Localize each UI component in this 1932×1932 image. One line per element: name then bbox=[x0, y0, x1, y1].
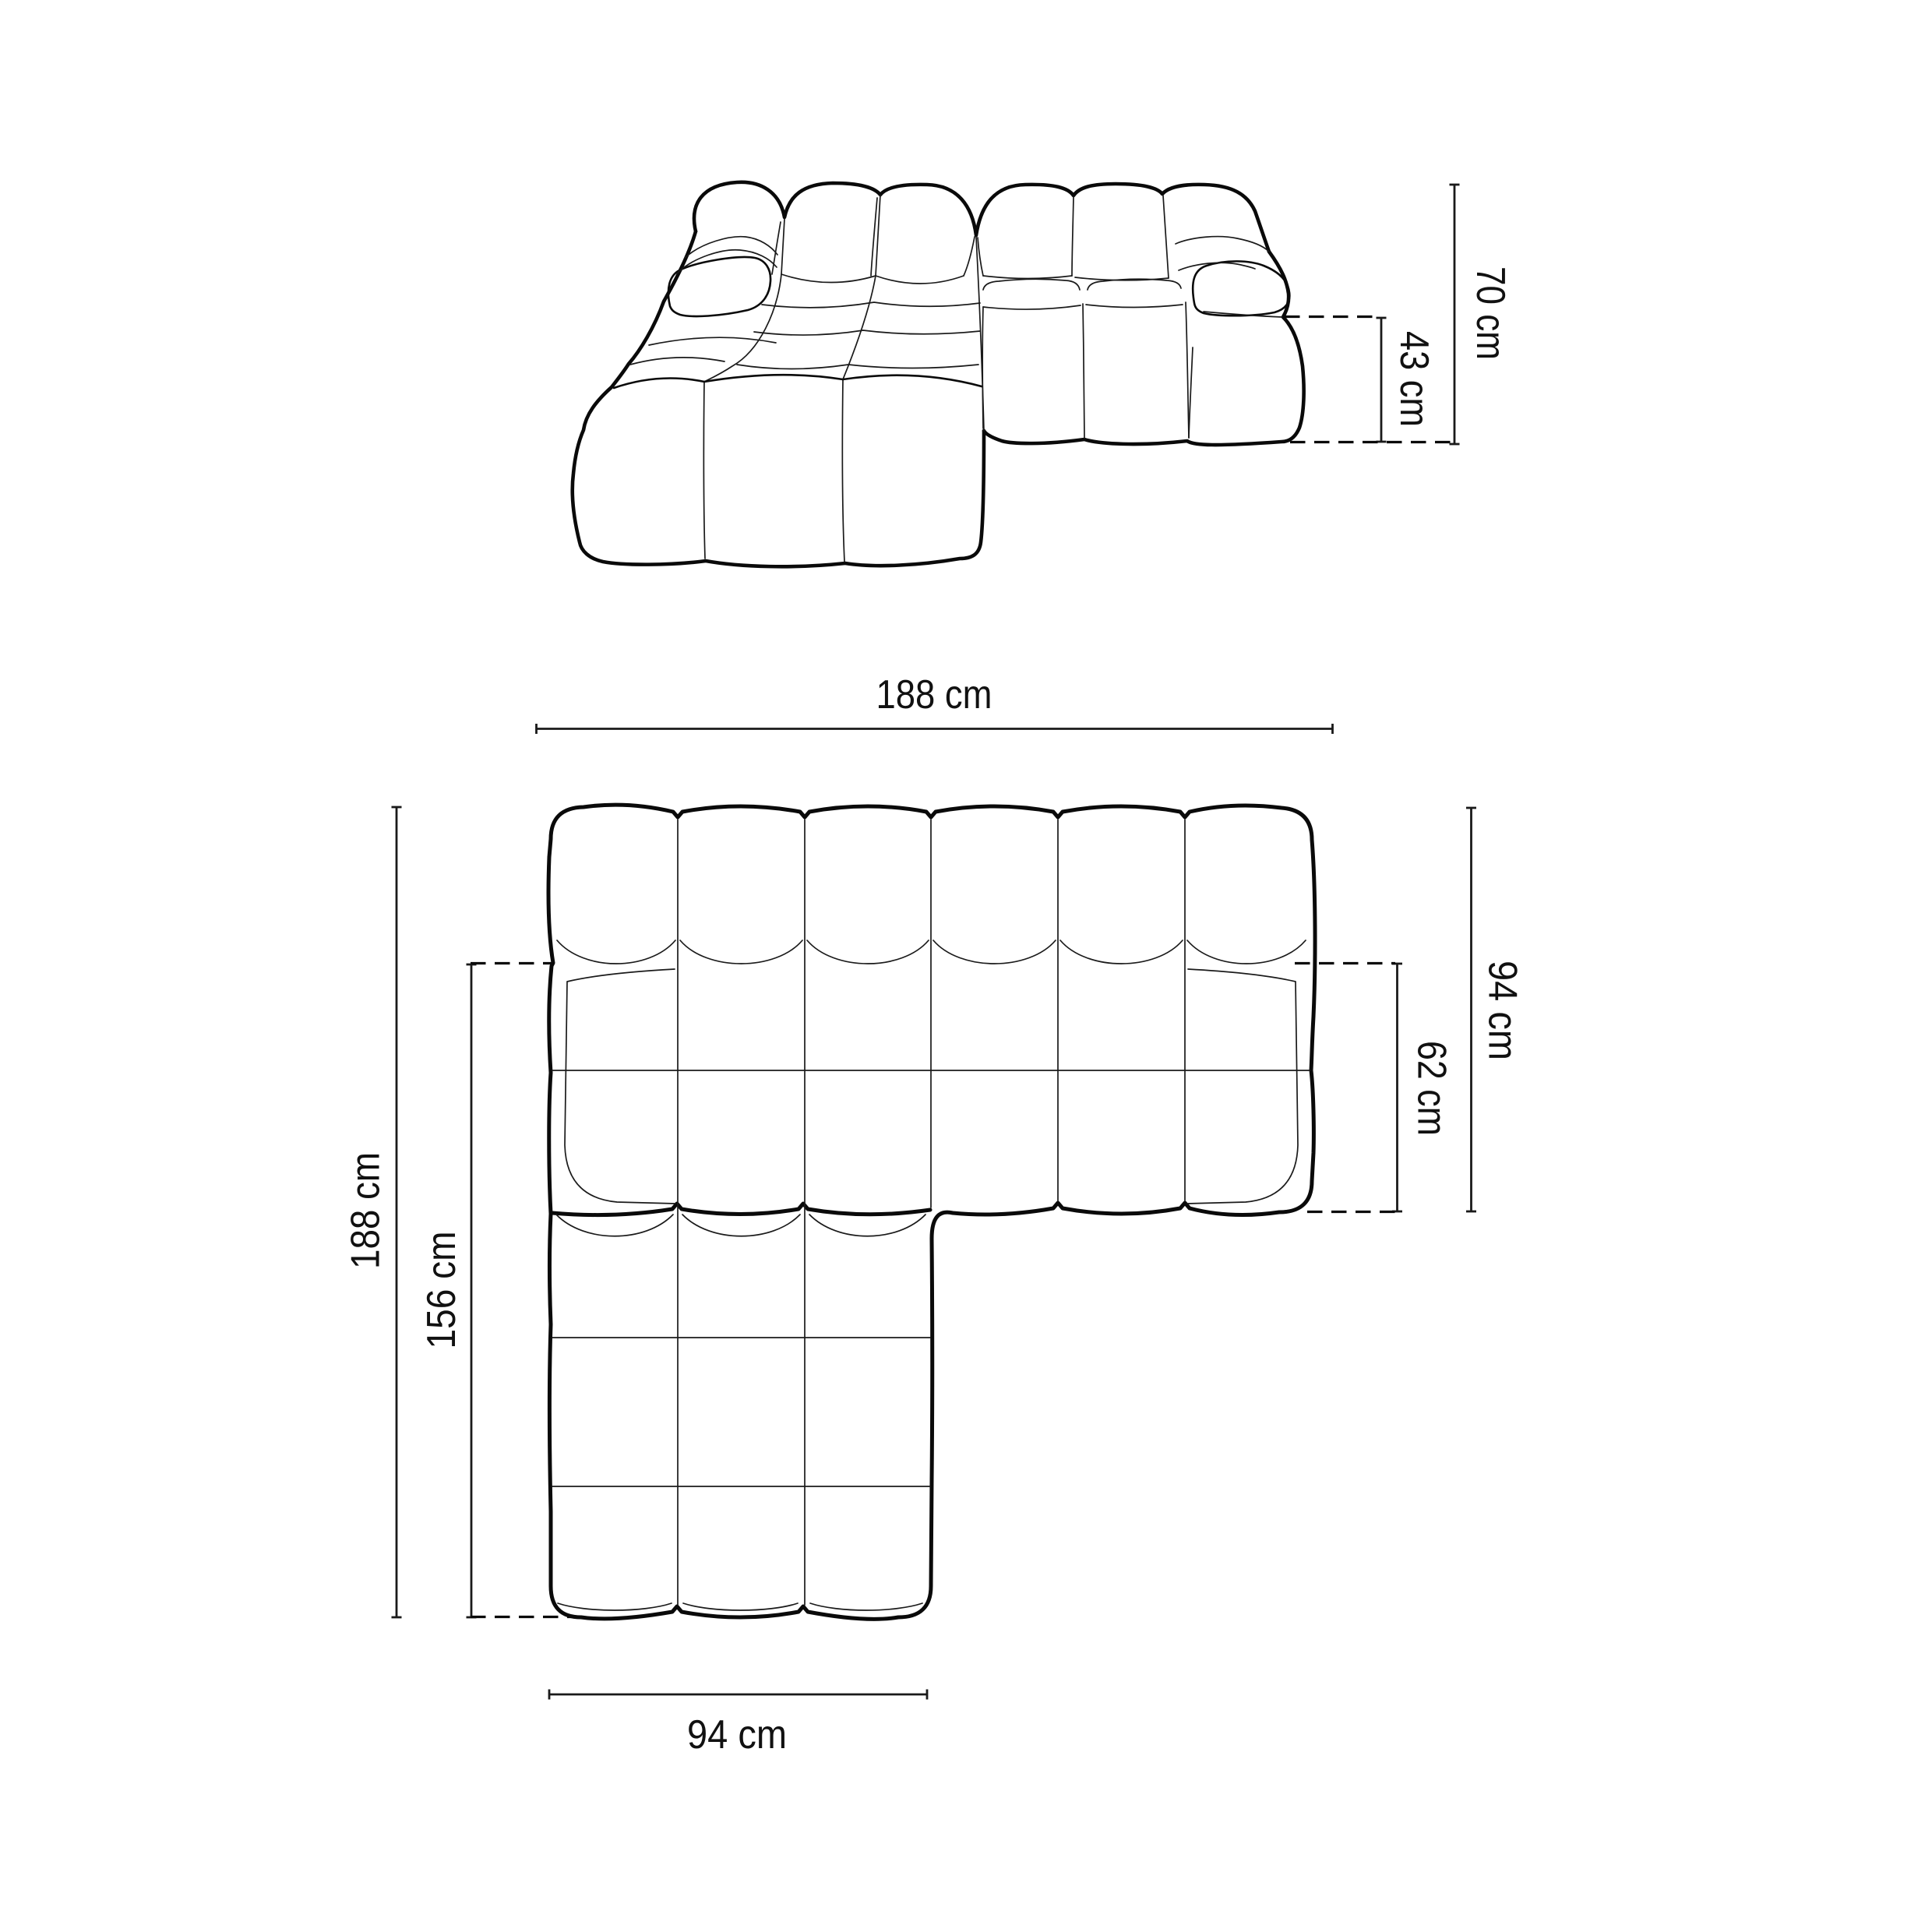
svg-text:188 cm: 188 cm bbox=[876, 672, 992, 717]
svg-text:94 cm: 94 cm bbox=[1480, 961, 1525, 1060]
svg-text:188 cm: 188 cm bbox=[344, 1152, 389, 1269]
svg-text:156 cm: 156 cm bbox=[419, 1232, 464, 1349]
svg-text:43 cm: 43 cm bbox=[1391, 331, 1437, 427]
svg-text:70 cm: 70 cm bbox=[1468, 266, 1513, 360]
svg-text:62 cm: 62 cm bbox=[1409, 1041, 1454, 1136]
svg-text:94 cm: 94 cm bbox=[687, 1712, 787, 1757]
